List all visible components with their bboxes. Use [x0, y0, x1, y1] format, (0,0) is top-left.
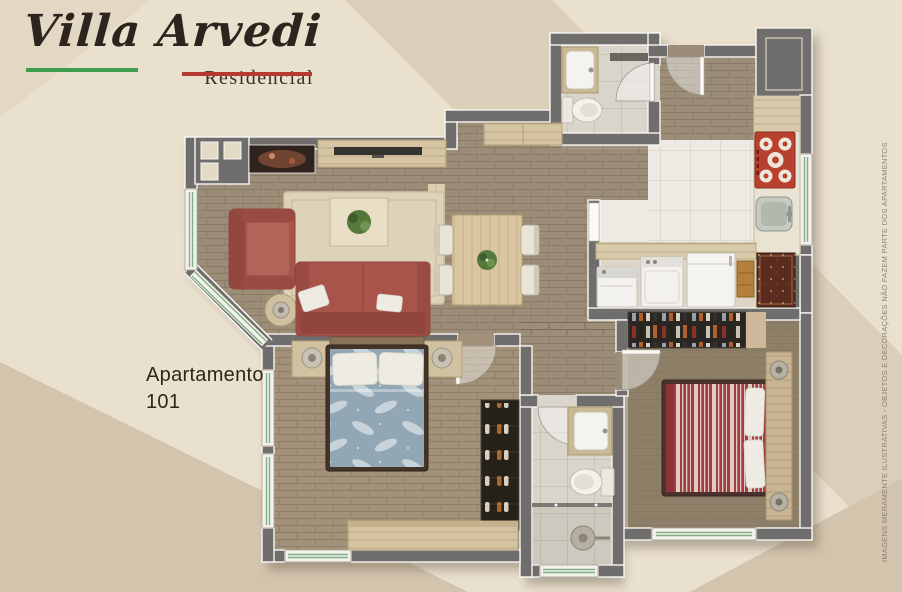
wall-bath2-top-a [520, 395, 538, 407]
disclaimer-text: IMAGENS MERAMENTE ILUSTRATIVAS - OBJETOS… [881, 206, 888, 562]
window-red-bottom [652, 528, 756, 540]
tv-console [318, 140, 446, 167]
wall-kitchen-right-a [800, 95, 812, 154]
window-blue-left-2 [262, 454, 274, 528]
wall-blue-left-c [262, 528, 274, 562]
wall-red-bottom-b [756, 528, 812, 540]
blue-threshold [458, 334, 494, 346]
corner-niches [195, 137, 249, 184]
brand-word-villa: Villa [22, 6, 143, 57]
wall-service-outer [800, 255, 812, 313]
double-bed-red [662, 380, 770, 496]
wall-hall-left [520, 346, 532, 395]
service-door [589, 203, 599, 241]
window-bath2-bottom [540, 565, 598, 577]
wall-blue-bottom-b [351, 550, 520, 562]
shoe-closet [481, 400, 519, 530]
side-table-lamp [265, 294, 297, 326]
laundry-area [596, 243, 795, 307]
wardrobe-side-panel [746, 312, 766, 348]
suite-toilet [570, 468, 614, 496]
wall-bath1-top [550, 33, 660, 45]
bath2-threshold [538, 395, 576, 407]
sideboard [484, 123, 562, 145]
tv [334, 147, 422, 155]
wall-art [249, 145, 315, 173]
logo-underline-red-icon [182, 72, 312, 76]
kitchen [754, 96, 800, 255]
wall-entry-b [704, 45, 756, 57]
wall-living-blue-stub [494, 334, 520, 346]
brand-word-arvedi: Arvedi [156, 6, 324, 57]
wall-red-right [800, 313, 812, 540]
freezer [687, 253, 735, 307]
stove [755, 132, 795, 188]
wall-red-left-a [616, 320, 628, 352]
wall-bath1-bottom [550, 133, 660, 145]
wall-red-left-b [616, 390, 628, 396]
drawer-unit [737, 261, 754, 297]
toilet [562, 97, 602, 123]
dryer [641, 257, 683, 307]
service-rug [757, 253, 795, 307]
coffee-table [330, 198, 388, 246]
window-blue-bottom [285, 550, 351, 562]
wall-top-dining [445, 110, 562, 122]
washer [597, 267, 637, 307]
sofa [296, 262, 430, 336]
wall-bath2-left [520, 395, 532, 577]
faucet [589, 68, 594, 73]
wall-shaft [756, 28, 812, 100]
window-kitchen-right [800, 154, 812, 245]
apartment-number: 101 [146, 389, 264, 416]
armchair [229, 209, 295, 289]
centerpiece-plant [477, 250, 497, 270]
dining-table [452, 215, 522, 305]
table-plant [347, 210, 371, 234]
shower-glass-bar [610, 53, 648, 61]
headboard-panel [766, 352, 792, 520]
apartment-name: Apartamento [146, 362, 264, 389]
logo-underline-green-icon [26, 68, 138, 72]
kitchen-sink [756, 197, 793, 231]
window-living-left [185, 189, 197, 270]
wall-bath2-bottom-b [598, 565, 624, 577]
hallway-tiles [520, 322, 616, 400]
double-bed-blue [326, 345, 428, 471]
glass-partition [532, 503, 612, 507]
apartment-label: Apartamento 101 [146, 362, 264, 416]
wall-entry-a [648, 45, 668, 57]
wall-bath2-top-b [576, 395, 624, 407]
desk-dresser [348, 521, 518, 550]
poster-canvas: Villa Arvedi Residencial Apartamento 101… [0, 0, 902, 592]
brand-logo: Villa Arvedi Residencial [24, 6, 324, 90]
wardrobe-clothes [628, 312, 766, 348]
wall-kitchen-right-b [800, 245, 812, 255]
suite-faucet [603, 429, 608, 434]
entry-threshold [668, 45, 704, 57]
wall-blue-left-b [262, 446, 274, 454]
brand-title: Villa Arvedi [22, 6, 326, 57]
